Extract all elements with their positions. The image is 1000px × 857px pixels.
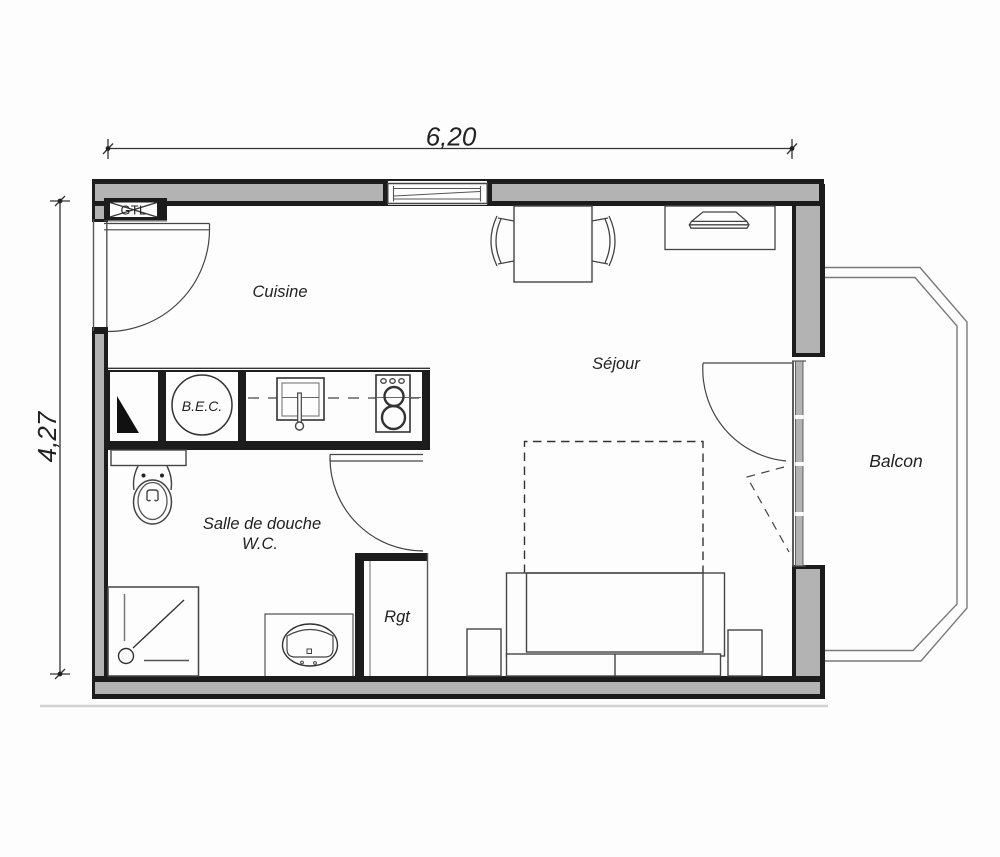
svg-text:B.E.C.: B.E.C. [182,398,222,414]
svg-text:Cuisine: Cuisine [252,283,307,301]
svg-text:Balcon: Balcon [869,451,923,471]
svg-text:4,27: 4,27 [32,410,62,462]
svg-text:Rgt: Rgt [384,608,411,626]
svg-text:GTL: GTL [121,204,147,218]
svg-text:Salle de douche: Salle de douche [203,515,321,533]
svg-text:Séjour: Séjour [592,355,641,373]
svg-text:W.C.: W.C. [242,535,278,553]
svg-text:6,20: 6,20 [426,122,477,152]
